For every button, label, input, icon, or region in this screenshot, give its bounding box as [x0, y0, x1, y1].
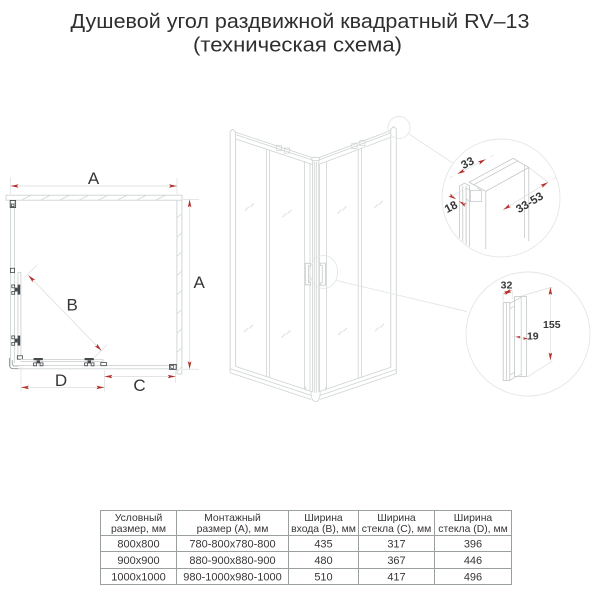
- svg-text:размер, мм: размер, мм: [111, 524, 166, 535]
- svg-text:стекла (С), мм: стекла (С), мм: [362, 524, 432, 535]
- svg-text:Душевой угол раздвижной квадра: Душевой угол раздвижной квадратный RV–13: [71, 10, 530, 33]
- svg-text:Ширина: Ширина: [304, 513, 343, 524]
- svg-text:800х800: 800х800: [117, 538, 159, 550]
- svg-text:A: A: [88, 169, 100, 188]
- svg-text:32: 32: [501, 280, 513, 292]
- svg-text:900х900: 900х900: [117, 555, 159, 567]
- svg-text:417: 417: [387, 571, 405, 583]
- svg-text:(техническая схема): (техническая схема): [193, 33, 402, 56]
- svg-text:435: 435: [314, 538, 332, 550]
- svg-text:входа (В), мм: входа (В), мм: [291, 524, 356, 535]
- svg-text:Ширина: Ширина: [377, 513, 416, 524]
- svg-text:780-800х780-800: 780-800х780-800: [189, 538, 275, 550]
- svg-text:396: 396: [464, 538, 482, 550]
- svg-text:880-900х880-900: 880-900х880-900: [189, 555, 275, 567]
- svg-text:155: 155: [543, 319, 561, 331]
- svg-text:317: 317: [387, 538, 405, 550]
- svg-text:размер (А), мм: размер (А), мм: [197, 524, 269, 535]
- svg-text:510: 510: [314, 571, 332, 583]
- svg-text:D: D: [55, 371, 67, 390]
- svg-text:980-1000х980-1000: 980-1000х980-1000: [183, 571, 281, 583]
- svg-text:Условный: Условный: [115, 513, 163, 524]
- svg-text:B: B: [67, 295, 78, 314]
- svg-text:1000х1000: 1000х1000: [111, 571, 165, 583]
- svg-text:480: 480: [314, 555, 332, 567]
- svg-text:367: 367: [387, 555, 405, 567]
- svg-text:Монтажный: Монтажный: [204, 513, 261, 524]
- svg-text:446: 446: [464, 555, 482, 567]
- svg-text:496: 496: [464, 571, 482, 583]
- svg-text:стекла (D), мм: стекла (D), мм: [438, 524, 508, 535]
- svg-text:19: 19: [527, 331, 539, 343]
- svg-text:A: A: [194, 273, 206, 292]
- svg-text:C: C: [133, 376, 145, 395]
- svg-text:Ширина: Ширина: [454, 513, 493, 524]
